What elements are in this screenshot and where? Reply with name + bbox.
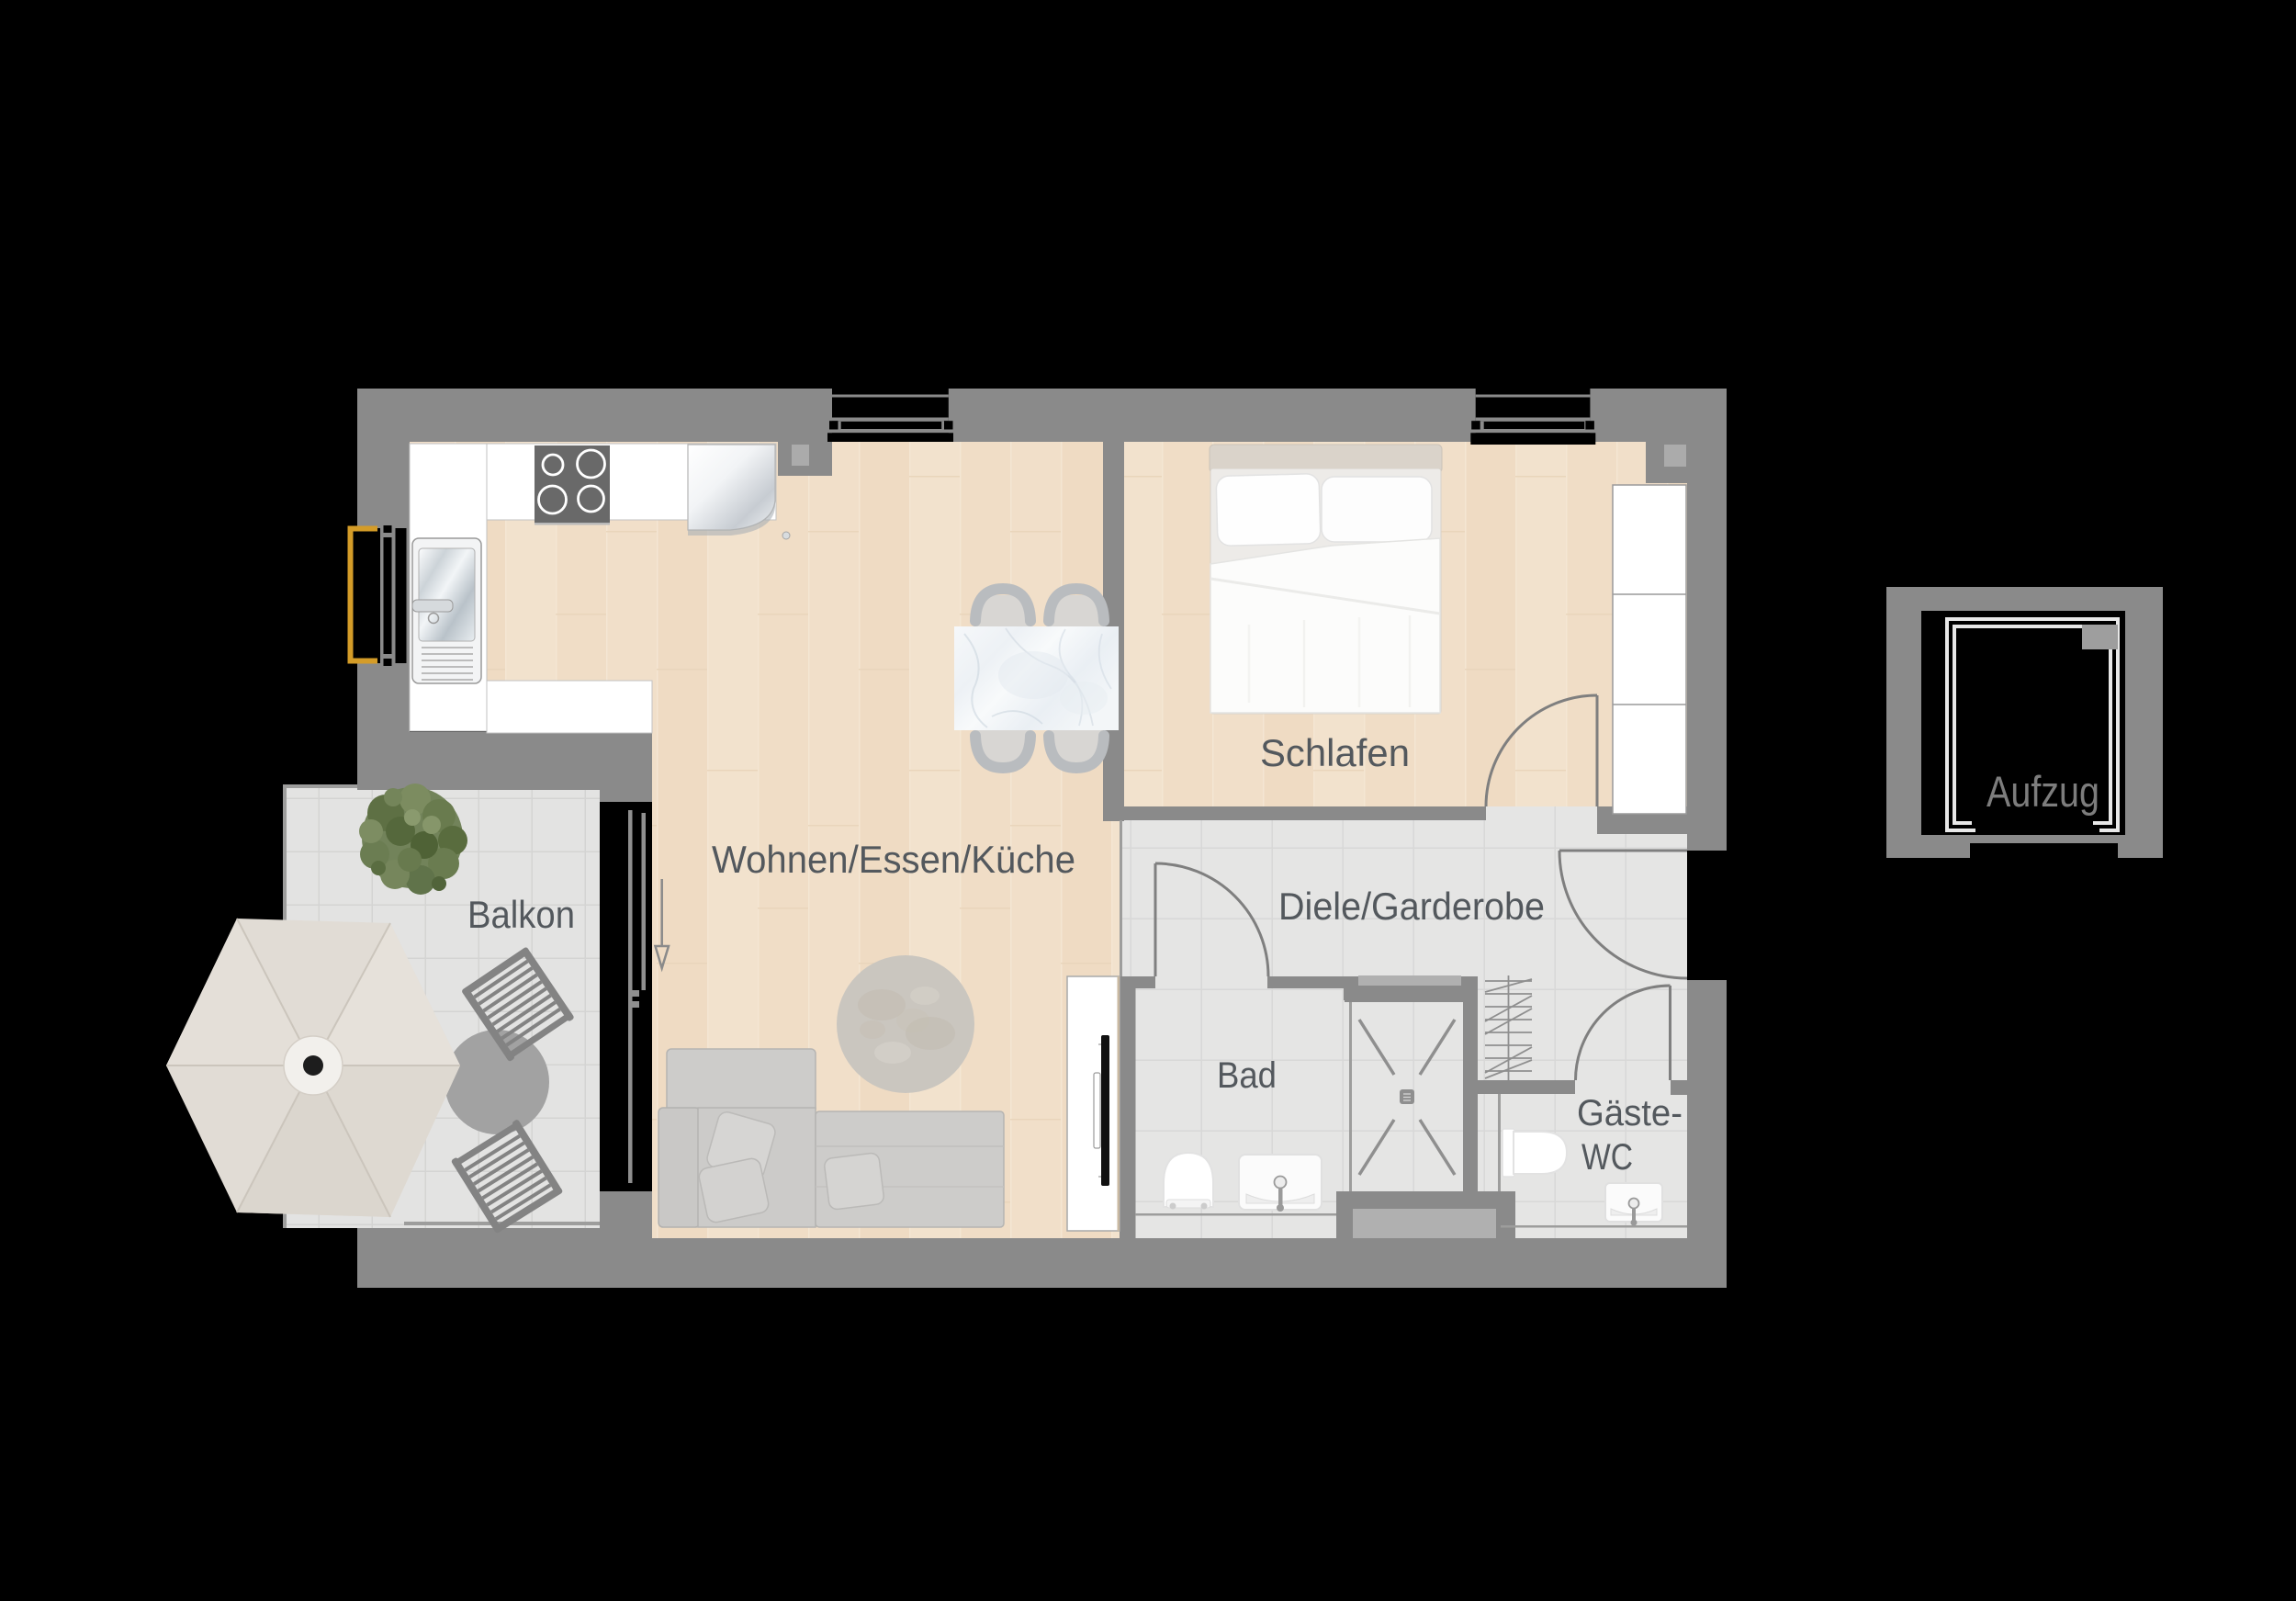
svg-text:Diele/Garderobe: Diele/Garderobe (1278, 885, 1545, 928)
svg-text:Gäste-: Gäste- (1577, 1093, 1683, 1133)
svg-text:Bad: Bad (1217, 1055, 1277, 1096)
svg-text:Schlafen: Schlafen (1260, 731, 1410, 774)
svg-text:Wohnen/Essen/Küche: Wohnen/Essen/Küche (712, 838, 1075, 881)
svg-text:Aufzug: Aufzug (1986, 767, 2099, 816)
svg-text:WC: WC (1581, 1137, 1633, 1178)
svg-text:Balkon: Balkon (467, 893, 575, 936)
